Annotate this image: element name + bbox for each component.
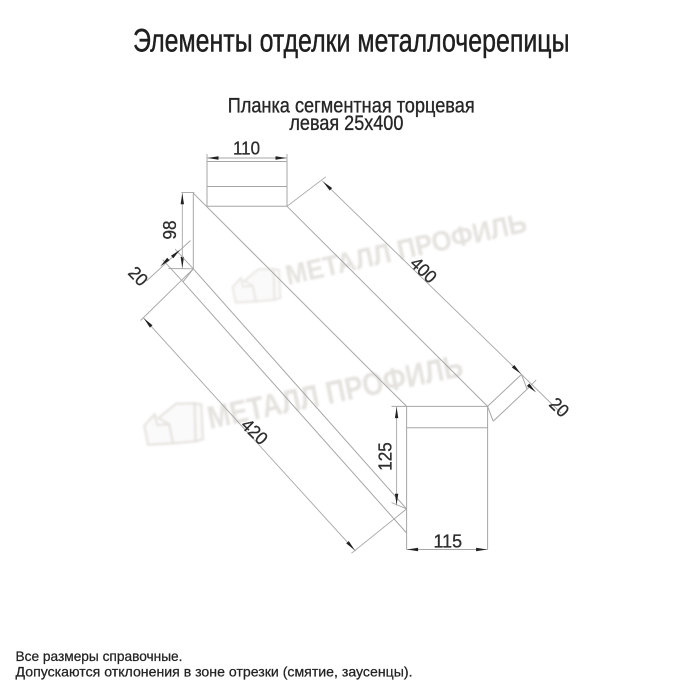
svg-text:Элементы отделки металлочерепи: Элементы отделки металлочерепицы (133, 22, 570, 58)
svg-text:Допускаются отклонения в зоне: Допускаются отклонения в зоне отрезки (с… (16, 664, 413, 680)
svg-text:левая 25х400: левая 25х400 (289, 111, 403, 135)
svg-text:110: 110 (233, 139, 260, 159)
svg-text:98: 98 (160, 221, 180, 240)
svg-text:125: 125 (376, 442, 396, 471)
svg-text:115: 115 (434, 532, 463, 552)
svg-text:Все размеры справочные.: Все размеры справочные. (16, 648, 183, 664)
